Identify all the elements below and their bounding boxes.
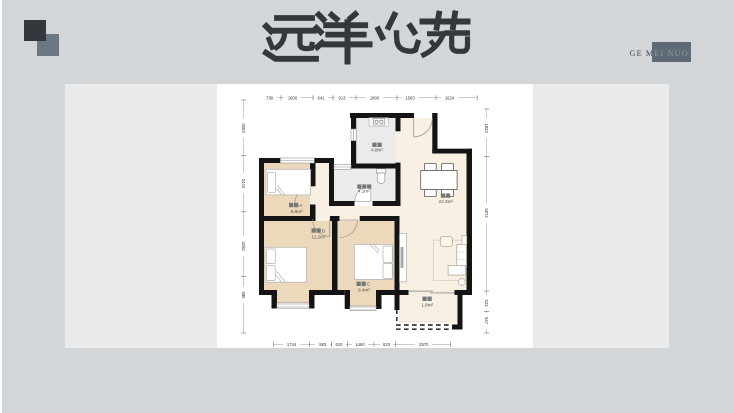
svg-text:1600: 1600	[288, 96, 298, 101]
svg-text:1563: 1563	[405, 96, 415, 101]
svg-text:1624: 1624	[445, 96, 455, 101]
svg-text:680: 680	[241, 292, 246, 300]
svg-text:641: 641	[318, 96, 326, 101]
svg-text:1823: 1823	[484, 123, 489, 133]
svg-text:2570: 2570	[419, 342, 429, 347]
svg-text:24.3m²: 24.3m²	[439, 199, 454, 204]
svg-text:1460: 1460	[355, 342, 365, 347]
svg-text:11.2m²: 11.2m²	[312, 235, 326, 240]
svg-text:2444: 2444	[241, 179, 246, 189]
svg-text:610: 610	[336, 342, 344, 347]
svg-text:4.1m²: 4.1m²	[358, 189, 370, 194]
svg-text:523: 523	[484, 300, 489, 308]
svg-text:913: 913	[339, 96, 347, 101]
svg-text:633: 633	[383, 342, 391, 347]
svg-text:883: 883	[319, 342, 327, 347]
svg-text:1.8m²: 1.8m²	[421, 303, 433, 308]
svg-text:6.6m²: 6.6m²	[291, 209, 303, 214]
svg-text:5974: 5974	[484, 208, 489, 218]
svg-text:B: B	[322, 228, 325, 233]
svg-text:1744: 1744	[287, 342, 297, 347]
svg-text:2003: 2003	[241, 123, 246, 133]
svg-text:1800: 1800	[370, 96, 380, 101]
svg-text:9.4m²: 9.4m²	[358, 288, 370, 293]
svg-text:547: 547	[484, 317, 489, 325]
svg-text:4.8m²: 4.8m²	[371, 148, 383, 153]
svg-text:738: 738	[266, 96, 274, 101]
svg-text:3250: 3250	[241, 241, 246, 251]
